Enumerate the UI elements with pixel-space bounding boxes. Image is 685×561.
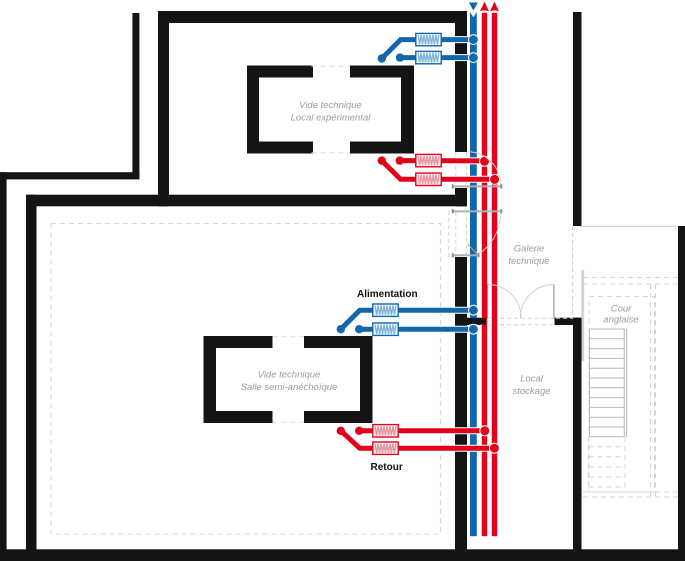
svg-text:Vide technique: Vide technique	[258, 370, 321, 381]
svg-text:Local: Local	[520, 374, 544, 385]
svg-text:Retour: Retour	[371, 462, 403, 473]
svg-text:Vide technique: Vide technique	[299, 100, 362, 111]
svg-text:Salle semi-anéchoïque: Salle semi-anéchoïque	[241, 382, 338, 393]
svg-text:stockage: stockage	[512, 386, 550, 397]
svg-text:technique: technique	[508, 256, 549, 267]
svg-text:Cour: Cour	[611, 304, 632, 315]
svg-text:Alimentation: Alimentation	[357, 289, 418, 300]
svg-text:anglaise: anglaise	[603, 315, 638, 326]
svg-text:Galerie: Galerie	[514, 244, 545, 255]
svg-text:Local expérimental: Local expérimental	[291, 113, 372, 124]
